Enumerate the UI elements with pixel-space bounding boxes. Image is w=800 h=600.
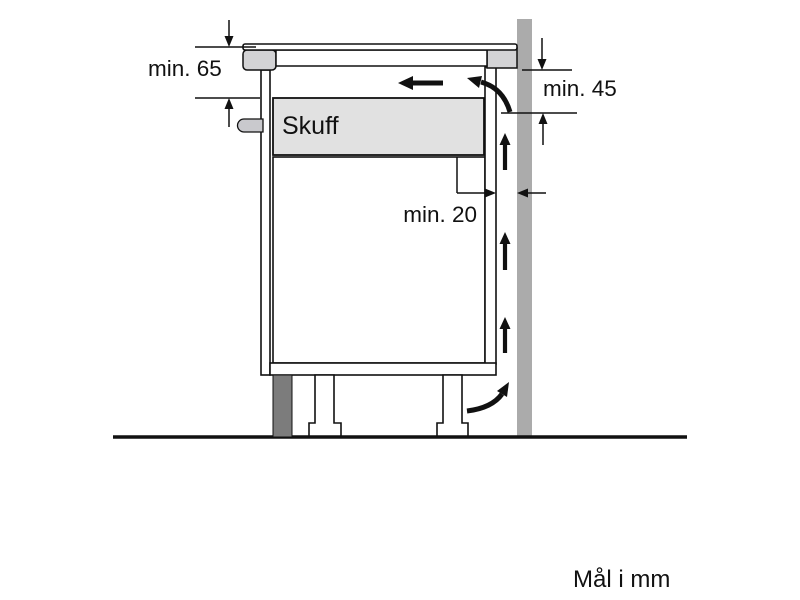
- cooktop-body: [276, 50, 487, 66]
- arrowhead-up-icon: [225, 98, 234, 109]
- cooktop-glass: [243, 44, 517, 50]
- plinth-panel: [273, 375, 292, 437]
- airflow-up-arrowhead-icon: [500, 133, 511, 145]
- front-leg: [309, 375, 341, 436]
- arrowhead-down-icon: [538, 59, 547, 70]
- countertop-front-edge: [243, 50, 276, 70]
- diagram-canvas: Skuff min. 65 min. 45: [0, 0, 800, 600]
- installation-diagram: Skuff min. 65 min. 45: [0, 0, 800, 600]
- connection-pin: [238, 119, 263, 132]
- airflow-left-arrowhead-icon: [398, 76, 413, 90]
- arrowhead-up-icon: [539, 113, 548, 124]
- dimension-min-65: min. 65: [148, 20, 260, 127]
- cabinet-interior: [273, 157, 485, 363]
- dim-label-min-20: min. 20: [403, 202, 477, 227]
- dim-label-min-45: min. 45: [543, 76, 617, 101]
- dim-label-min-65: min. 65: [148, 56, 222, 81]
- drawer-label: Skuff: [282, 112, 339, 140]
- airflow-up-arrowhead-icon: [500, 232, 511, 244]
- wall-section: [517, 19, 532, 437]
- airflow-curve-bottom: [467, 394, 502, 411]
- cabinet-front-panel: [261, 70, 270, 375]
- countertop-back-edge: [487, 48, 517, 68]
- back-leg: [437, 375, 468, 436]
- cabinet-bottom-panel: [270, 363, 496, 375]
- airflow-up-arrowhead-icon: [500, 317, 511, 329]
- cabinet-back-panel: [485, 67, 496, 364]
- arrowhead-down-icon: [225, 36, 234, 47]
- units-note: Mål i mm: [573, 566, 670, 593]
- airflow-curve-top-arrowhead-icon: [467, 76, 482, 88]
